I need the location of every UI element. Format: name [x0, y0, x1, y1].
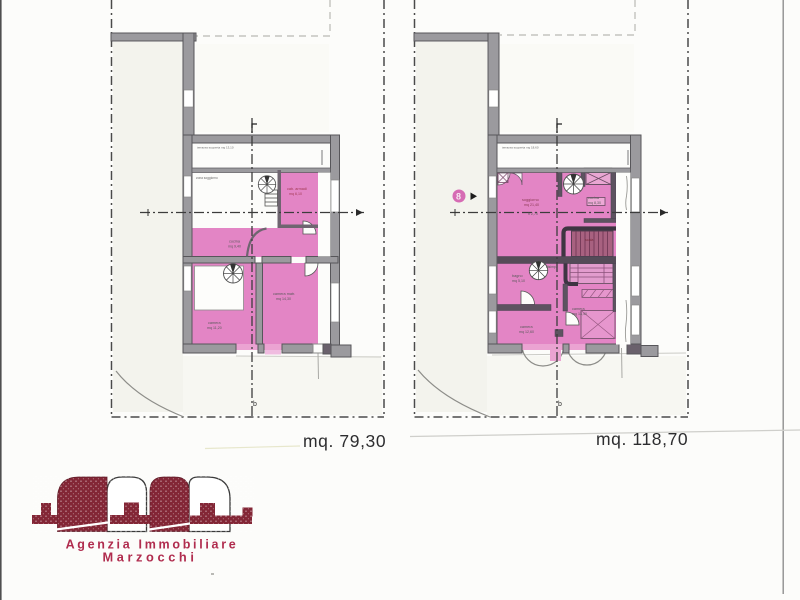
- svg-text:camera: camera: [520, 325, 534, 329]
- svg-text:camera: camera: [208, 321, 222, 325]
- svg-text:8: 8: [456, 192, 461, 202]
- svg-text:disimp.: disimp.: [546, 265, 557, 269]
- svg-text:mq 21,40: mq 21,40: [524, 203, 539, 207]
- svg-text:mq 13,40: mq 13,40: [572, 312, 587, 316]
- svg-text:terrazza scoperta mq 13,10: terrazza scoperta mq 13,10: [197, 146, 234, 150]
- svg-text:mq. 79,30: mq. 79,30: [303, 431, 386, 451]
- svg-text:mq 9,40: mq 9,40: [228, 245, 241, 249]
- svg-text:zona soggiorno: zona soggiorno: [196, 176, 218, 180]
- svg-text:cucina: cucina: [229, 240, 241, 244]
- svg-text:cucina: cucina: [588, 196, 600, 200]
- svg-text:mq 11,20: mq 11,20: [207, 326, 222, 330]
- svg-text:b: b: [558, 401, 562, 408]
- svg-text:bagno: bagno: [512, 274, 523, 278]
- svg-text:camera: camera: [572, 307, 586, 311]
- svg-text:Marzocchi: Marzocchi: [103, 550, 198, 565]
- svg-text:camera matr.: camera matr.: [273, 292, 295, 296]
- svg-text:cab. armadi: cab. armadi: [287, 187, 307, 191]
- svg-text:b: b: [253, 401, 257, 408]
- svg-text:scala: scala: [585, 238, 593, 242]
- svg-text:soggiorno: soggiorno: [522, 198, 539, 202]
- svg-text:mq 12,60: mq 12,60: [519, 330, 534, 334]
- svg-text:h 2,70: h 2,70: [528, 212, 538, 216]
- svg-text:mq 14,30: mq 14,30: [276, 297, 291, 301]
- svg-text:mq 8,30: mq 8,30: [588, 201, 601, 205]
- svg-text:mq 5,10: mq 5,10: [512, 279, 525, 283]
- svg-text:mq 6,10: mq 6,10: [289, 192, 302, 196]
- svg-text:terrazza scoperta mq 18,60: terrazza scoperta mq 18,60: [502, 146, 539, 150]
- svg-text:mq. 118,70: mq. 118,70: [596, 429, 688, 449]
